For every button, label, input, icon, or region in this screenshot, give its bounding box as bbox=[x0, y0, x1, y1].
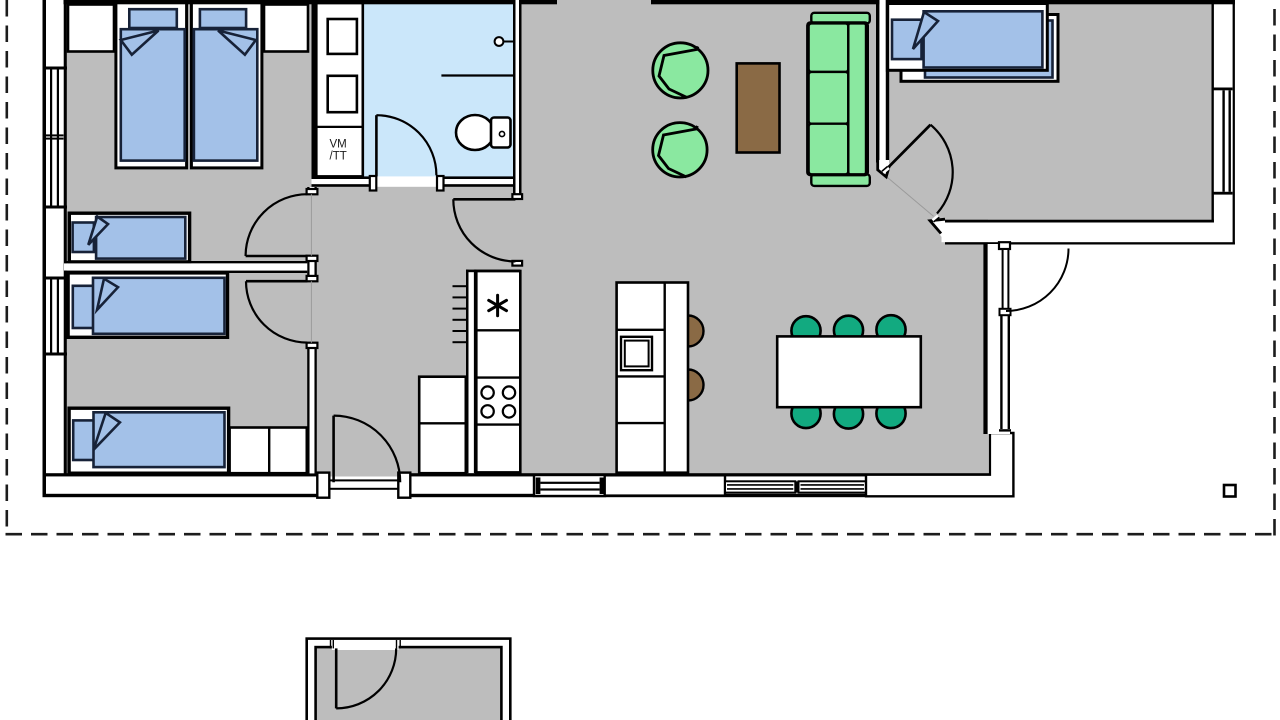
svg-text:/TT: /TT bbox=[330, 151, 347, 163]
svg-text:VM: VM bbox=[330, 139, 347, 151]
